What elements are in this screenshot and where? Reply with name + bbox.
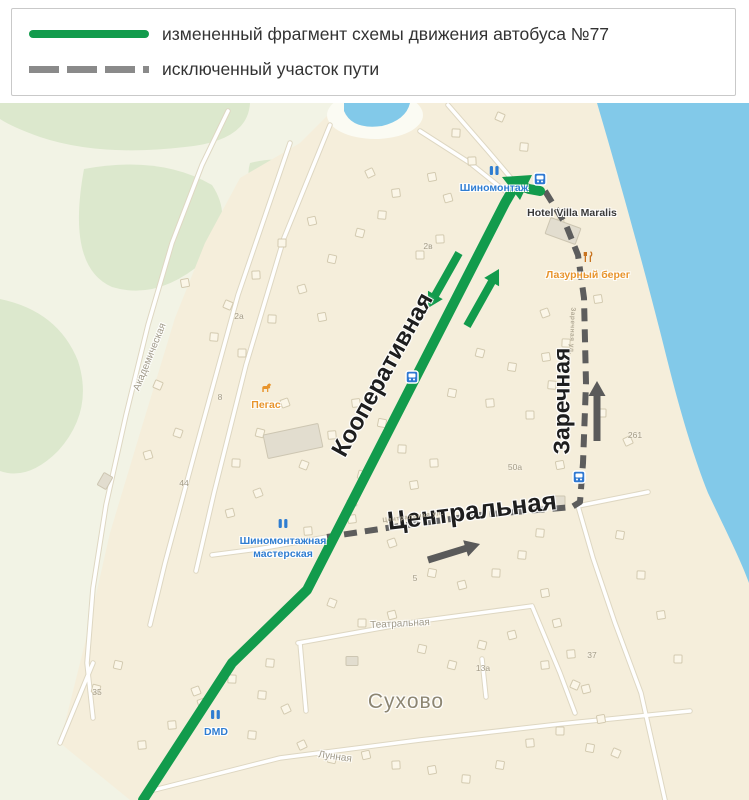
building bbox=[518, 551, 527, 560]
building bbox=[615, 530, 624, 539]
building bbox=[656, 610, 665, 619]
building bbox=[248, 731, 257, 740]
building bbox=[492, 569, 500, 577]
building bbox=[536, 529, 545, 538]
restaurant-icon bbox=[582, 250, 594, 268]
building bbox=[567, 650, 576, 659]
building bbox=[392, 189, 401, 198]
poi-shinomontazhnaya-masterskaya[interactable]: Шиномонтажная мастерская bbox=[240, 516, 327, 560]
poi-shinomontazh-label: Шиномонтаж bbox=[460, 182, 528, 194]
building bbox=[552, 618, 562, 628]
building bbox=[447, 388, 456, 397]
legend-row-changed: измененный фрагмент схемы движения автоб… bbox=[29, 24, 735, 45]
poi-hotel-label: Hotel Villa Maralis bbox=[527, 207, 617, 219]
building bbox=[180, 278, 189, 287]
building bbox=[143, 450, 153, 460]
building bbox=[278, 239, 286, 247]
building bbox=[593, 294, 602, 303]
building bbox=[252, 271, 260, 279]
poi-hotel-villa-maralis[interactable]: Hotel Villa Maralis bbox=[527, 207, 617, 219]
building bbox=[507, 630, 517, 640]
building bbox=[297, 284, 307, 294]
bus-stop-icon[interactable] bbox=[534, 173, 546, 185]
building bbox=[138, 741, 147, 750]
poi-lazurny-bereg-label: Лазурный берег bbox=[546, 269, 630, 281]
building bbox=[526, 739, 535, 748]
tire-service-icon bbox=[278, 516, 289, 534]
building bbox=[452, 129, 460, 137]
building bbox=[317, 312, 326, 321]
building bbox=[596, 714, 605, 723]
legend-box: измененный фрагмент схемы движения автоб… bbox=[11, 8, 736, 96]
poi-pegas[interactable]: Пегас bbox=[251, 380, 280, 411]
building bbox=[555, 460, 564, 469]
building bbox=[486, 399, 495, 408]
building bbox=[581, 684, 591, 694]
building bbox=[327, 254, 337, 264]
building bbox=[225, 508, 235, 518]
building bbox=[238, 349, 246, 357]
poi-dmd[interactable]: DMD bbox=[204, 707, 228, 738]
street-label-zarechnaya: Заречная bbox=[549, 348, 576, 455]
building bbox=[232, 459, 240, 467]
legend-swatch-excluded-route bbox=[29, 66, 149, 73]
bus-stop-icon[interactable] bbox=[573, 471, 585, 483]
house-number: 44 bbox=[179, 478, 188, 488]
house-number: 2а bbox=[234, 311, 243, 321]
building bbox=[520, 143, 529, 152]
building bbox=[457, 580, 467, 590]
building bbox=[355, 228, 365, 238]
building bbox=[361, 750, 371, 760]
building bbox=[556, 727, 564, 735]
house-number: 13а bbox=[476, 663, 490, 673]
poi-pegas-label: Пегас bbox=[251, 399, 280, 411]
building bbox=[436, 235, 444, 243]
building bbox=[475, 348, 485, 358]
legend-row-excluded: исключенный участок пути bbox=[29, 59, 735, 80]
house-number: 2в bbox=[423, 241, 432, 251]
poi-shinomontazhnaya-label-line2: мастерская bbox=[253, 548, 313, 560]
legend-label-changed-route: измененный фрагмент схемы движения автоб… bbox=[162, 24, 609, 45]
bus-stop-icon[interactable] bbox=[406, 371, 418, 383]
building bbox=[462, 775, 471, 784]
building bbox=[378, 211, 387, 220]
building bbox=[168, 721, 177, 730]
poi-lazurny-bereg[interactable]: Лазурный берег bbox=[546, 250, 630, 281]
building bbox=[495, 760, 504, 769]
building bbox=[268, 315, 276, 323]
legend-label-excluded-route: исключенный участок пути bbox=[162, 59, 379, 80]
building bbox=[417, 644, 427, 654]
horse-icon bbox=[260, 380, 272, 398]
tire-service-icon bbox=[210, 707, 221, 725]
building bbox=[430, 459, 438, 467]
house-number: 8 bbox=[218, 392, 223, 402]
building bbox=[585, 743, 594, 752]
building-large bbox=[346, 657, 358, 666]
building bbox=[113, 660, 123, 670]
building bbox=[637, 571, 645, 579]
building bbox=[358, 619, 366, 627]
building bbox=[477, 640, 487, 650]
building bbox=[258, 691, 267, 700]
tire-service-icon bbox=[489, 163, 500, 181]
building bbox=[447, 660, 457, 670]
building bbox=[427, 172, 436, 181]
map-canvas[interactable]: Кооперативная Заречная Центральная Акаде… bbox=[0, 103, 749, 800]
building bbox=[210, 333, 219, 342]
poi-dmd-label: DMD bbox=[204, 726, 228, 738]
building bbox=[307, 216, 317, 226]
place-label-suhovo: Сухово bbox=[368, 690, 444, 714]
house-number: 261 bbox=[628, 430, 642, 440]
building bbox=[427, 568, 436, 577]
building bbox=[526, 411, 534, 419]
building bbox=[541, 661, 550, 670]
building bbox=[443, 193, 453, 203]
building bbox=[392, 761, 400, 769]
legend-swatch-changed-route bbox=[29, 30, 149, 38]
house-number: 37 bbox=[587, 650, 596, 660]
house-number: 50а bbox=[508, 462, 522, 472]
building bbox=[398, 445, 406, 453]
building bbox=[409, 480, 418, 489]
building bbox=[674, 655, 682, 663]
house-number: 5 bbox=[413, 573, 418, 583]
building bbox=[427, 765, 436, 774]
building bbox=[540, 588, 549, 597]
house-number: 35 bbox=[92, 687, 101, 697]
building bbox=[507, 362, 516, 371]
poi-shinomontazh[interactable]: Шиномонтаж bbox=[460, 163, 528, 194]
building bbox=[416, 251, 424, 259]
building bbox=[266, 659, 275, 668]
poi-shinomontazhnaya-label-line1: Шиномонтажная bbox=[240, 535, 327, 547]
